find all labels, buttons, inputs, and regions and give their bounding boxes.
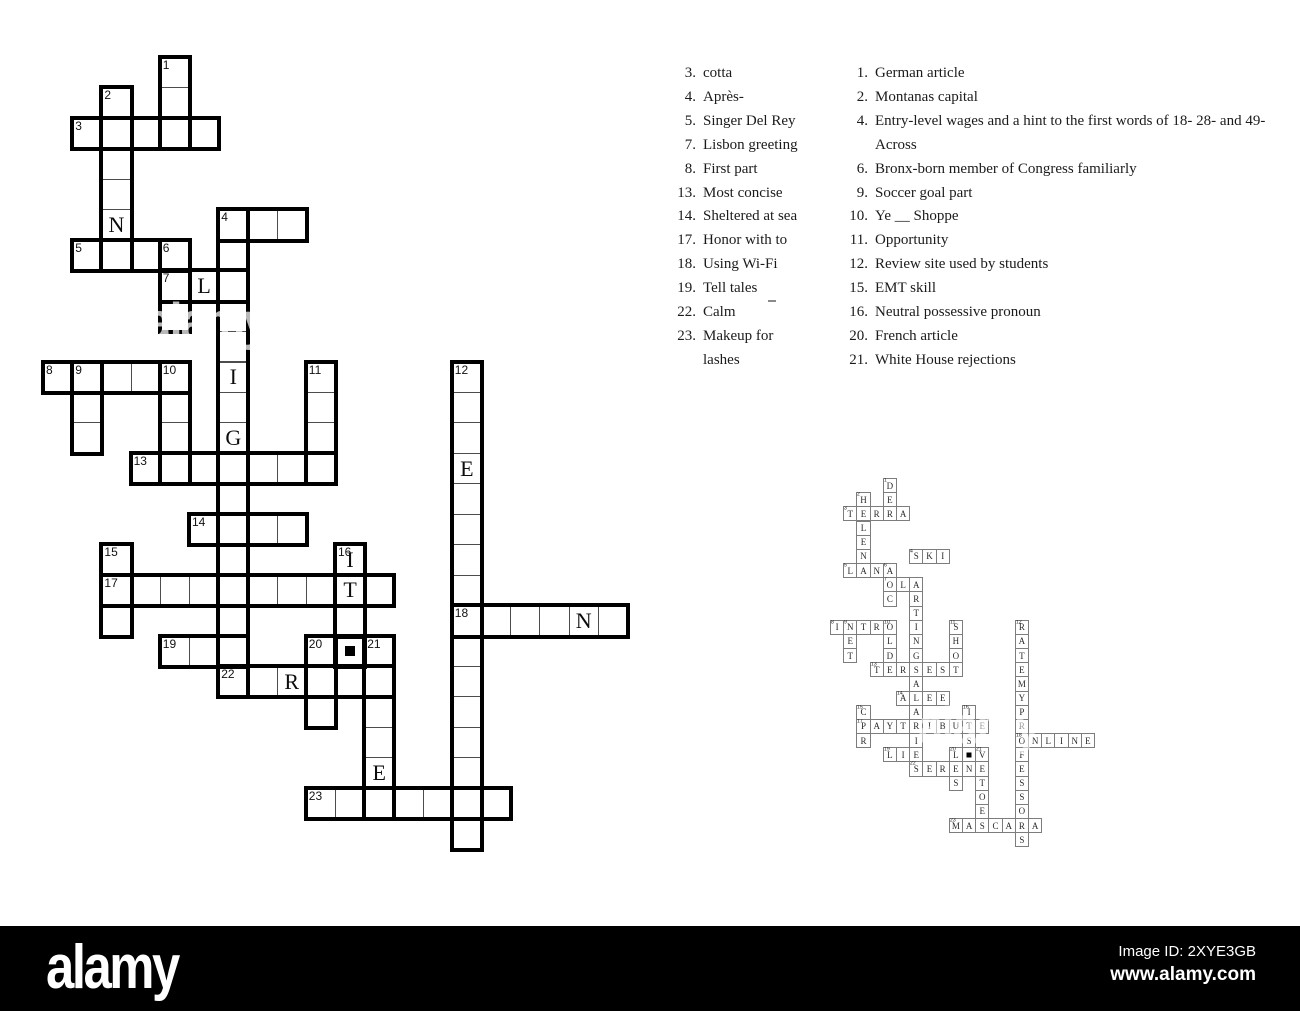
cell-letter: T: [844, 507, 856, 520]
solution-cell: 4S: [909, 549, 923, 564]
cell-letter: E: [923, 762, 935, 775]
clue-number: 20.: [788, 325, 875, 349]
down-clue-15: 15.EMT skill: [788, 277, 1266, 301]
solution-cell: A: [896, 506, 910, 521]
clue-number: 18.: [640, 253, 703, 277]
cell-letter: T: [857, 621, 869, 634]
cell-letter: I: [897, 748, 909, 761]
cell-letter: E: [1082, 734, 1094, 747]
solution-cell: R: [856, 733, 870, 748]
solution-cell: T: [856, 620, 870, 635]
solution-cell: 7O: [883, 577, 897, 592]
solution-cell: I: [936, 549, 950, 564]
stock-photo-page: 123N4567L8910I1112G13E141516I17T18N19202…: [0, 0, 1300, 1011]
solution-cell: 19L: [883, 747, 897, 762]
cell-letter: C: [884, 592, 896, 605]
clue-number: 17.: [640, 229, 703, 253]
solution-cell: S: [949, 776, 963, 791]
solution-cell: T: [975, 776, 989, 791]
cell-letter: V: [976, 748, 988, 761]
cell-letter: L: [910, 692, 922, 705]
clue-text: First part: [703, 158, 758, 182]
cell-letter: R: [1016, 819, 1028, 832]
cell-letter: R: [937, 762, 949, 775]
clue-text: Entry-level wages and a hint to the firs…: [875, 110, 1265, 158]
solution-cell: 9N: [843, 620, 857, 635]
cell-letter: Y: [1016, 692, 1028, 705]
clue-text: Ye __ Shoppe: [875, 205, 959, 229]
solution-cell: N: [962, 761, 976, 776]
solution-cell: N: [909, 634, 923, 649]
clue-text: Soccer goal part: [875, 182, 972, 206]
cell-letter: T: [976, 777, 988, 790]
solution-cell: R: [1015, 818, 1029, 833]
down-clue-21: 21.White House rejections: [788, 349, 1266, 373]
cell-letter: E: [1016, 663, 1028, 676]
clue-number: 12.: [788, 253, 875, 277]
solution-cell: E: [856, 535, 870, 550]
clue-list-down: 1.German article2.Montanas capital4.Entr…: [788, 62, 1266, 373]
cell-letter: N: [963, 762, 975, 775]
cell-letter: E: [937, 692, 949, 705]
solution-cell: 8I: [830, 620, 844, 635]
solution-cell: L: [856, 521, 870, 536]
solution-cell: H: [949, 634, 963, 649]
cell-letter: E: [884, 493, 896, 506]
clue-number: 15.: [788, 277, 875, 301]
solution-cell: E: [883, 492, 897, 507]
solution-cell: R: [936, 761, 950, 776]
cell-letter: R: [910, 592, 922, 605]
solution-cell: A: [909, 676, 923, 691]
solution-cell: O: [1015, 804, 1029, 819]
image-id-text: Image ID: 2XYE3GB: [1118, 943, 1256, 960]
cell-letter: S: [976, 819, 988, 832]
solution-cell: T: [909, 606, 923, 621]
solution-cell: F: [1015, 747, 1029, 762]
solution-cell: L: [896, 577, 910, 592]
solution-cell: 3T: [843, 506, 857, 521]
solution-cell: 11S: [949, 620, 963, 635]
clue-text: Sheltered at sea: [703, 205, 797, 229]
cell-letter: A: [910, 706, 922, 719]
clue-text: Neutral possessive pronoun: [875, 301, 1041, 325]
cell-letter: O: [1016, 734, 1028, 747]
solution-cell: L: [1041, 733, 1055, 748]
clue-number: 3.: [640, 62, 703, 86]
solution-cell: 23M: [949, 818, 963, 833]
solution-cell: D: [883, 648, 897, 663]
down-clue-9: 9.Soccer goal part: [788, 182, 1266, 206]
solution-cell: I: [909, 620, 923, 635]
clue-text: Honor with to: [703, 229, 787, 253]
solution-cell: 21V: [975, 747, 989, 762]
solution-cell: R: [870, 620, 884, 635]
solution-cell: T: [949, 662, 963, 677]
clue-number: 10.: [788, 205, 875, 229]
cell-letter: E: [857, 536, 869, 549]
cell-letter: D: [884, 479, 896, 492]
solution-cell: 20L: [949, 747, 963, 762]
solution-cell: C: [988, 818, 1002, 833]
down-clue-6: 6.Bronx-born member of Congress familiar…: [788, 158, 1266, 182]
clue-number: 1.: [788, 62, 875, 86]
solution-cell: K: [922, 549, 936, 564]
cell-letter: A: [884, 564, 896, 577]
solution-cell: E: [1081, 733, 1095, 748]
solution-cell: S: [975, 818, 989, 833]
solution-cell: 22S: [909, 761, 923, 776]
cell-letter: T: [844, 649, 856, 662]
cell-letter: C: [989, 819, 1001, 832]
cell-letter: R: [910, 720, 922, 733]
solution-cell: E: [975, 719, 989, 734]
solution-cell: 13T: [870, 662, 884, 677]
solution-cell: N: [1028, 733, 1042, 748]
cell-letter: E: [950, 762, 962, 775]
black-square-icon: [967, 752, 972, 757]
down-clue-1: 1.German article: [788, 62, 1266, 86]
solution-cell: R: [909, 719, 923, 734]
cell-letter: I: [910, 621, 922, 634]
cell-letter: E: [884, 663, 896, 676]
cell-letter: I: [963, 706, 975, 719]
cell-letter: S: [937, 663, 949, 676]
solution-cell: O: [975, 790, 989, 805]
cell-letter: P: [857, 720, 869, 733]
cell-letter: N: [857, 550, 869, 563]
clue-number: 19.: [640, 277, 703, 301]
solution-cell: 2H: [856, 492, 870, 507]
solution-cell: L: [909, 691, 923, 706]
solution-cell: L: [883, 634, 897, 649]
solution-cell: S: [1015, 790, 1029, 805]
down-clue-2: 2.Montanas capital: [788, 86, 1266, 110]
cell-letter: Y: [884, 720, 896, 733]
cell-letter: A: [910, 677, 922, 690]
solution-cell: E: [975, 804, 989, 819]
clue-text: Lisbon greeting: [703, 134, 798, 158]
solution-cell: I: [909, 733, 923, 748]
clue-text: Review site used by students: [875, 253, 1048, 277]
clue-text: Calm: [703, 301, 736, 325]
down-clue-20: 20.French article: [788, 325, 1266, 349]
solution-cell: T: [843, 648, 857, 663]
clue-number: 11.: [788, 229, 875, 253]
cell-letter: O: [884, 578, 896, 591]
cell-letter: I: [831, 621, 843, 634]
clue-text: White House rejections: [875, 349, 1016, 373]
clue-number: 13.: [640, 182, 703, 206]
cell-letter: S: [950, 621, 962, 634]
solution-cell: M: [1015, 676, 1029, 691]
cell-letter: L: [1042, 734, 1054, 747]
alamy-url-link[interactable]: www.alamy.com: [1110, 964, 1256, 986]
cell-letter: L: [857, 522, 869, 535]
clue-number: 16.: [788, 301, 875, 325]
cell-letter: S: [910, 663, 922, 676]
solution-cell: I: [1054, 733, 1068, 748]
cell-letter: B: [937, 720, 949, 733]
cell-letter: E: [923, 692, 935, 705]
solution-cell: A: [962, 818, 976, 833]
cell-letter: D: [884, 649, 896, 662]
solution-cell: 5L: [843, 563, 857, 578]
cell-letter: R: [884, 507, 896, 520]
solution-cell: 16I: [962, 705, 976, 720]
watermark-bar: alamy Image ID: 2XYE3GB www.alamy.com: [0, 926, 1300, 1011]
solution-cell: 14A: [896, 691, 910, 706]
cell-letter: N: [1069, 734, 1081, 747]
solution-cell: S: [936, 662, 950, 677]
cell-letter: S: [950, 777, 962, 790]
cell-letter: R: [1016, 720, 1028, 733]
cell-letter: R: [857, 734, 869, 747]
cell-letter: A: [1003, 819, 1015, 832]
cell-letter: S: [1016, 777, 1028, 790]
alamy-logo: alamy: [46, 932, 178, 1003]
clue-text: Using Wi-Fi: [703, 253, 778, 277]
solution-cell: E: [922, 691, 936, 706]
clue-number: 22.: [640, 301, 703, 325]
solution-cell: I: [922, 719, 936, 734]
solution-cell: R: [1015, 719, 1029, 734]
clue-number: 23.: [640, 325, 703, 373]
solution-cell: E: [975, 761, 989, 776]
solution-cell: S: [962, 733, 976, 748]
cell-letter: T: [910, 607, 922, 620]
cell-letter: A: [963, 819, 975, 832]
cell-letter: I: [1055, 734, 1067, 747]
down-clue-4: 4.Entry-level wages and a hint to the fi…: [788, 110, 1266, 158]
solution-cell: 6A: [883, 563, 897, 578]
cell-letter: U: [950, 720, 962, 733]
clue-number: 14.: [640, 205, 703, 229]
clue-text: French article: [875, 325, 958, 349]
solution-cell: E: [922, 662, 936, 677]
solution-cell: A: [1015, 634, 1029, 649]
solution-cell: E: [936, 691, 950, 706]
clue-text: German article: [875, 62, 965, 86]
cell-letter: P: [1016, 706, 1028, 719]
cell-letter: O: [1016, 805, 1028, 818]
clue-number: 2.: [788, 86, 875, 110]
cell-letter: A: [910, 578, 922, 591]
cell-letter: S: [1016, 833, 1028, 846]
solution-cell: C: [883, 591, 897, 606]
solution-cell: N: [1068, 733, 1082, 748]
clue-text: Bronx-born member of Congress familiarly: [875, 158, 1137, 182]
solution-cell: E: [1015, 761, 1029, 776]
cell-letter: M: [950, 819, 962, 832]
solution-cell: N: [870, 563, 884, 578]
cell-letter: I: [910, 734, 922, 747]
cell-letter: N: [871, 564, 883, 577]
clue-text: Montanas capital: [875, 86, 978, 110]
clue-number: 8.: [640, 158, 703, 182]
cell-letter: O: [976, 791, 988, 804]
solution-cell: R: [883, 506, 897, 521]
cell-letter: S: [963, 734, 975, 747]
cell-letter: A: [897, 692, 909, 705]
cell-letter: R: [897, 663, 909, 676]
cell-letter: S: [910, 550, 922, 563]
clue-number: 9.: [788, 182, 875, 206]
solution-cell: A: [909, 705, 923, 720]
cell-letter: R: [871, 621, 883, 634]
solution-cell: B: [936, 719, 950, 734]
cell-letter: S: [1016, 791, 1028, 804]
solution-cell: R: [909, 591, 923, 606]
cell-letter: T: [950, 663, 962, 676]
cell-letter: N: [1029, 734, 1041, 747]
solution-cell: G: [909, 648, 923, 663]
solution-cell: A: [1028, 818, 1042, 833]
clue-number: 7.: [640, 134, 703, 158]
cell-letter: T: [963, 720, 975, 733]
cell-letter: E: [857, 507, 869, 520]
solution-cell: A: [870, 719, 884, 734]
cell-letter: H: [857, 493, 869, 506]
solution-cell: E: [856, 506, 870, 521]
cell-letter: G: [910, 649, 922, 662]
cell-letter: L: [884, 635, 896, 648]
clue-number: 4.: [788, 110, 875, 158]
solution-cell: E: [883, 662, 897, 677]
solution-cell: T: [962, 719, 976, 734]
solution-cell: R: [896, 662, 910, 677]
cell-letter: L: [950, 748, 962, 761]
cell-letter: K: [923, 550, 935, 563]
solution-cell: E: [949, 761, 963, 776]
down-clue-12: 12.Review site used by students: [788, 253, 1266, 277]
solution-cell: A: [909, 577, 923, 592]
solution-cell: R: [870, 506, 884, 521]
solution-cell: O: [949, 648, 963, 663]
cell-letter: E: [923, 663, 935, 676]
clue-text: cotta: [703, 62, 732, 86]
solution-cell: 18O: [1015, 733, 1029, 748]
solution-cell: 17P: [856, 719, 870, 734]
clue-text: Most concise: [703, 182, 783, 206]
clue-number: 5.: [640, 110, 703, 134]
solution-cell: A: [856, 563, 870, 578]
cell-letter: C: [857, 706, 869, 719]
solution-cell: T: [1015, 648, 1029, 663]
cell-letter: A: [1016, 635, 1028, 648]
cell-letter: A: [871, 720, 883, 733]
solution-cell: S: [1015, 776, 1029, 791]
solution-cell: S: [1015, 832, 1029, 847]
solution-cell: U: [949, 719, 963, 734]
clue-text: EMT skill: [875, 277, 936, 301]
cell-letter: E: [976, 805, 988, 818]
clue-text: Tell tales: [703, 277, 757, 301]
cell-letter: N: [910, 635, 922, 648]
cell-letter: F: [1016, 748, 1028, 761]
cell-letter: A: [1029, 819, 1041, 832]
cell-letter: H: [950, 635, 962, 648]
cell-letter: R: [871, 507, 883, 520]
solution-cell: A: [1002, 818, 1016, 833]
solution-cell: S: [909, 662, 923, 677]
solution-cell: 15C: [856, 705, 870, 720]
cell-letter: I: [923, 720, 935, 733]
down-clue-10: 10.Ye __ Shoppe: [788, 205, 1266, 229]
down-clue-11: 11.Opportunity: [788, 229, 1266, 253]
clue-text: Makeup for lashes: [703, 325, 773, 373]
solution-cell: E: [843, 634, 857, 649]
solution-cell: 10O: [883, 620, 897, 635]
solution-cell: T: [896, 719, 910, 734]
cell-letter: E: [910, 748, 922, 761]
cell-letter: A: [897, 507, 909, 520]
cell-letter: R: [1016, 621, 1028, 634]
solution-cell: E: [1015, 662, 1029, 677]
clue-number: 4.: [640, 86, 703, 110]
cell-letter: N: [844, 621, 856, 634]
solution-cell: Y: [1015, 691, 1029, 706]
cell-letter: L: [884, 748, 896, 761]
cell-letter: E: [1016, 762, 1028, 775]
clue-text: Après-: [703, 86, 744, 110]
solution-cell: Y: [883, 719, 897, 734]
solution-cell: 12R: [1015, 620, 1029, 635]
cell-letter: M: [1016, 677, 1028, 690]
cell-letter: O: [950, 649, 962, 662]
cell-letter: T: [1016, 649, 1028, 662]
solution-cell: P: [1015, 705, 1029, 720]
cell-letter: O: [884, 621, 896, 634]
cell-letter: L: [897, 578, 909, 591]
clue-number: 6.: [788, 158, 875, 182]
cell-letter: L: [844, 564, 856, 577]
cell-letter: T: [897, 720, 909, 733]
cell-letter: S: [910, 762, 922, 775]
watermark-artifact: [768, 300, 776, 302]
cell-letter: E: [844, 635, 856, 648]
down-clue-16: 16.Neutral possessive pronoun: [788, 301, 1266, 325]
cell-letter: T: [871, 663, 883, 676]
cell-letter: A: [857, 564, 869, 577]
cell-letter: E: [976, 720, 988, 733]
solution-cell: 1D: [883, 478, 897, 493]
clue-text: Singer Del Rey: [703, 110, 795, 134]
solution-cell: N: [856, 549, 870, 564]
clue-text: Opportunity: [875, 229, 948, 253]
solution-cell: E: [922, 761, 936, 776]
solution-cell: I: [896, 747, 910, 762]
cell-letter: E: [976, 762, 988, 775]
clue-number: 21.: [788, 349, 875, 373]
cell-letter: I: [937, 550, 949, 563]
solution-cell: [962, 747, 976, 762]
